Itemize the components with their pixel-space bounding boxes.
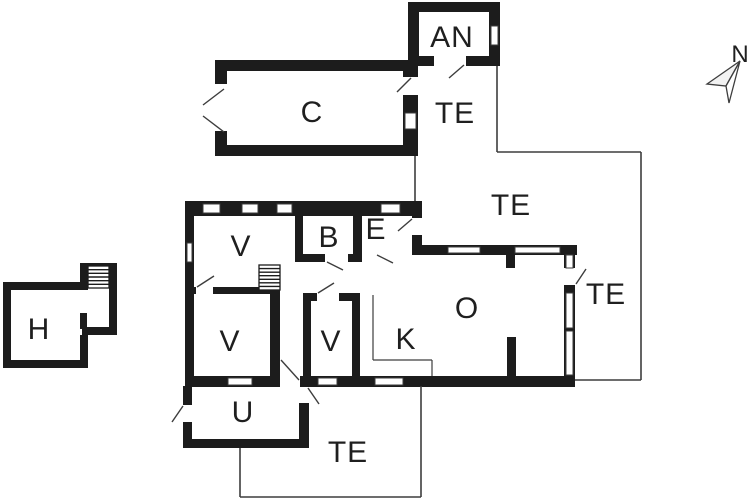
window-top-w1 — [203, 204, 220, 213]
door-swing-e-right-swing — [398, 219, 412, 231]
door-opening-b-door — [325, 253, 348, 263]
door-swing-o-right-swing — [576, 269, 586, 284]
door-swing-e-bottom-swing — [377, 255, 393, 263]
room-label-v-3: V — [320, 325, 341, 358]
wall-h-ext-right — [109, 263, 117, 335]
room-label-te-2: TE — [491, 189, 531, 222]
wall-c-top — [215, 60, 418, 71]
room-label-b: B — [318, 221, 339, 254]
wall-b-e-divider — [353, 201, 362, 262]
door-opening-v3-door — [317, 292, 339, 302]
room-label-c: C — [301, 96, 324, 129]
window-top-w4 — [381, 204, 400, 213]
wall-an-top — [408, 2, 500, 12]
window-c-right-w1 — [405, 113, 416, 129]
wall-v2-right — [270, 290, 280, 386]
window-left-w1 — [187, 243, 192, 262]
compass-north-label: N — [731, 41, 748, 68]
room-label-v-1: V — [230, 230, 251, 263]
door-swing-b-swing — [327, 262, 343, 270]
floor-plan-page: ANCTETETETEVBEVVKOUH N — [0, 0, 750, 500]
door-swing-v-divider-swing — [197, 276, 214, 287]
wall-v3-right — [352, 293, 360, 386]
door-opening-u-left-door — [182, 405, 193, 422]
floor-plan-canvas: ANCTETETETEVBEVVKOUH N — [0, 0, 750, 500]
wall-h-right-lower — [80, 335, 88, 368]
door-opening-an-door — [434, 55, 466, 67]
door-opening-e-right-door — [411, 218, 423, 235]
room-label-te-1: TE — [435, 97, 475, 130]
window-o-right-w1 — [566, 255, 573, 268]
door-swing-u-left-swing — [172, 406, 183, 422]
room-label-k: K — [395, 323, 416, 356]
room-label-v-2: V — [219, 325, 240, 358]
wall-u-right — [299, 403, 309, 448]
door-swing-v3-swing — [318, 283, 334, 293]
wall-h-top — [3, 282, 86, 290]
room-label-h: H — [28, 313, 51, 346]
room-label-an: AN — [430, 21, 474, 54]
door-swing-u-right-swing — [308, 388, 319, 404]
wall-b-left — [295, 201, 303, 257]
window-bottom-w2 — [318, 378, 337, 385]
room-label-te-4: TE — [328, 436, 368, 469]
wall-main-left — [185, 201, 194, 387]
window-o-right-w2 — [566, 293, 573, 328]
wall-h-ext-bottom — [82, 327, 117, 335]
wall-v3-left — [303, 293, 311, 386]
wall-h-bottom — [3, 360, 88, 368]
window-o-right-w3 — [566, 331, 573, 375]
window-top-w2 — [242, 204, 258, 213]
room-label-te-3: TE — [586, 278, 626, 311]
door-opening-v-divider-door — [196, 286, 213, 295]
wall-o-stub-bottom — [507, 337, 516, 377]
window-o-top-w1 — [448, 247, 480, 253]
wall-o-stub-top — [506, 255, 515, 268]
window-o-top-w2 — [515, 247, 560, 253]
wall-h-left — [3, 282, 11, 368]
wall-c-right — [403, 60, 418, 156]
window-an-w1 — [491, 26, 498, 45]
wall-u-bottom — [183, 439, 308, 448]
door-opening-o-right-door — [563, 268, 576, 285]
room-label-u: U — [232, 396, 255, 429]
window-bottom-w1 — [228, 378, 252, 385]
room-label-e: E — [365, 213, 386, 246]
wall-h-stub — [80, 313, 87, 329]
window-bottom-w3 — [375, 378, 403, 385]
wall-c-bottom — [215, 145, 418, 156]
room-label-o: O — [455, 292, 479, 325]
door-opening-c-right-door — [402, 77, 419, 95]
compass: N — [707, 41, 749, 103]
window-top-w3 — [277, 204, 292, 213]
